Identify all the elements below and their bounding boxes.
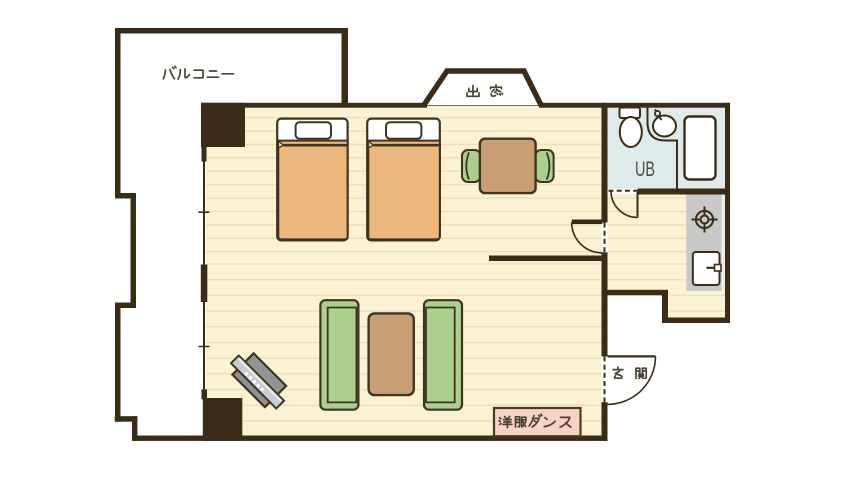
svg-text:UB: UB: [635, 158, 655, 181]
